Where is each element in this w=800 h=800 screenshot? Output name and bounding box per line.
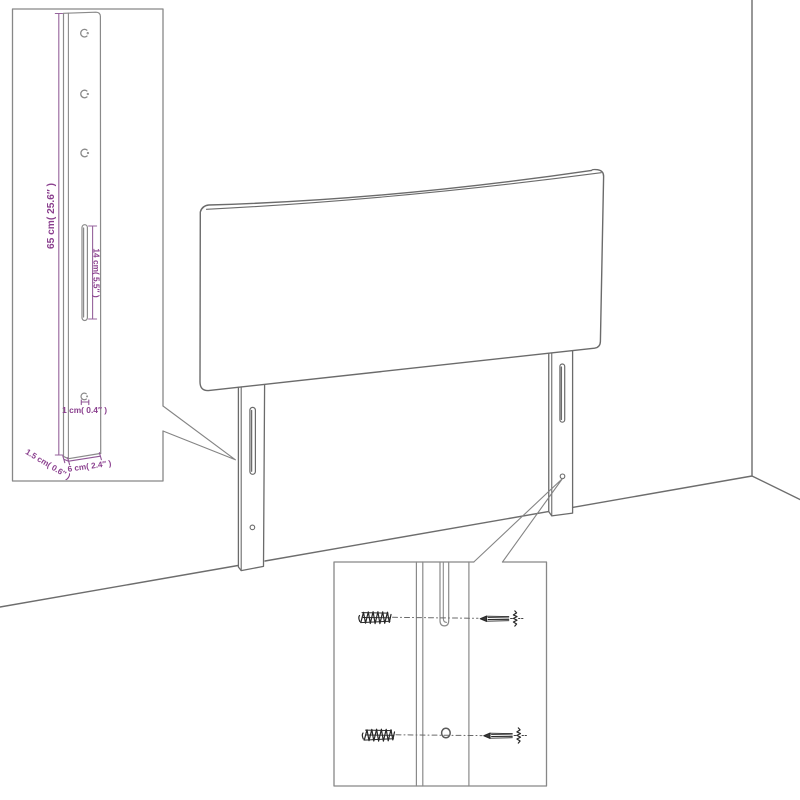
svg-text:1 cm( 0.4″ ): 1 cm( 0.4″ ) — [62, 405, 107, 415]
svg-text:14 cm( 5.5″ ): 14 cm( 5.5″ ) — [91, 248, 101, 297]
svg-text:65 cm( 25.6″ ): 65 cm( 25.6″ ) — [46, 183, 57, 249]
